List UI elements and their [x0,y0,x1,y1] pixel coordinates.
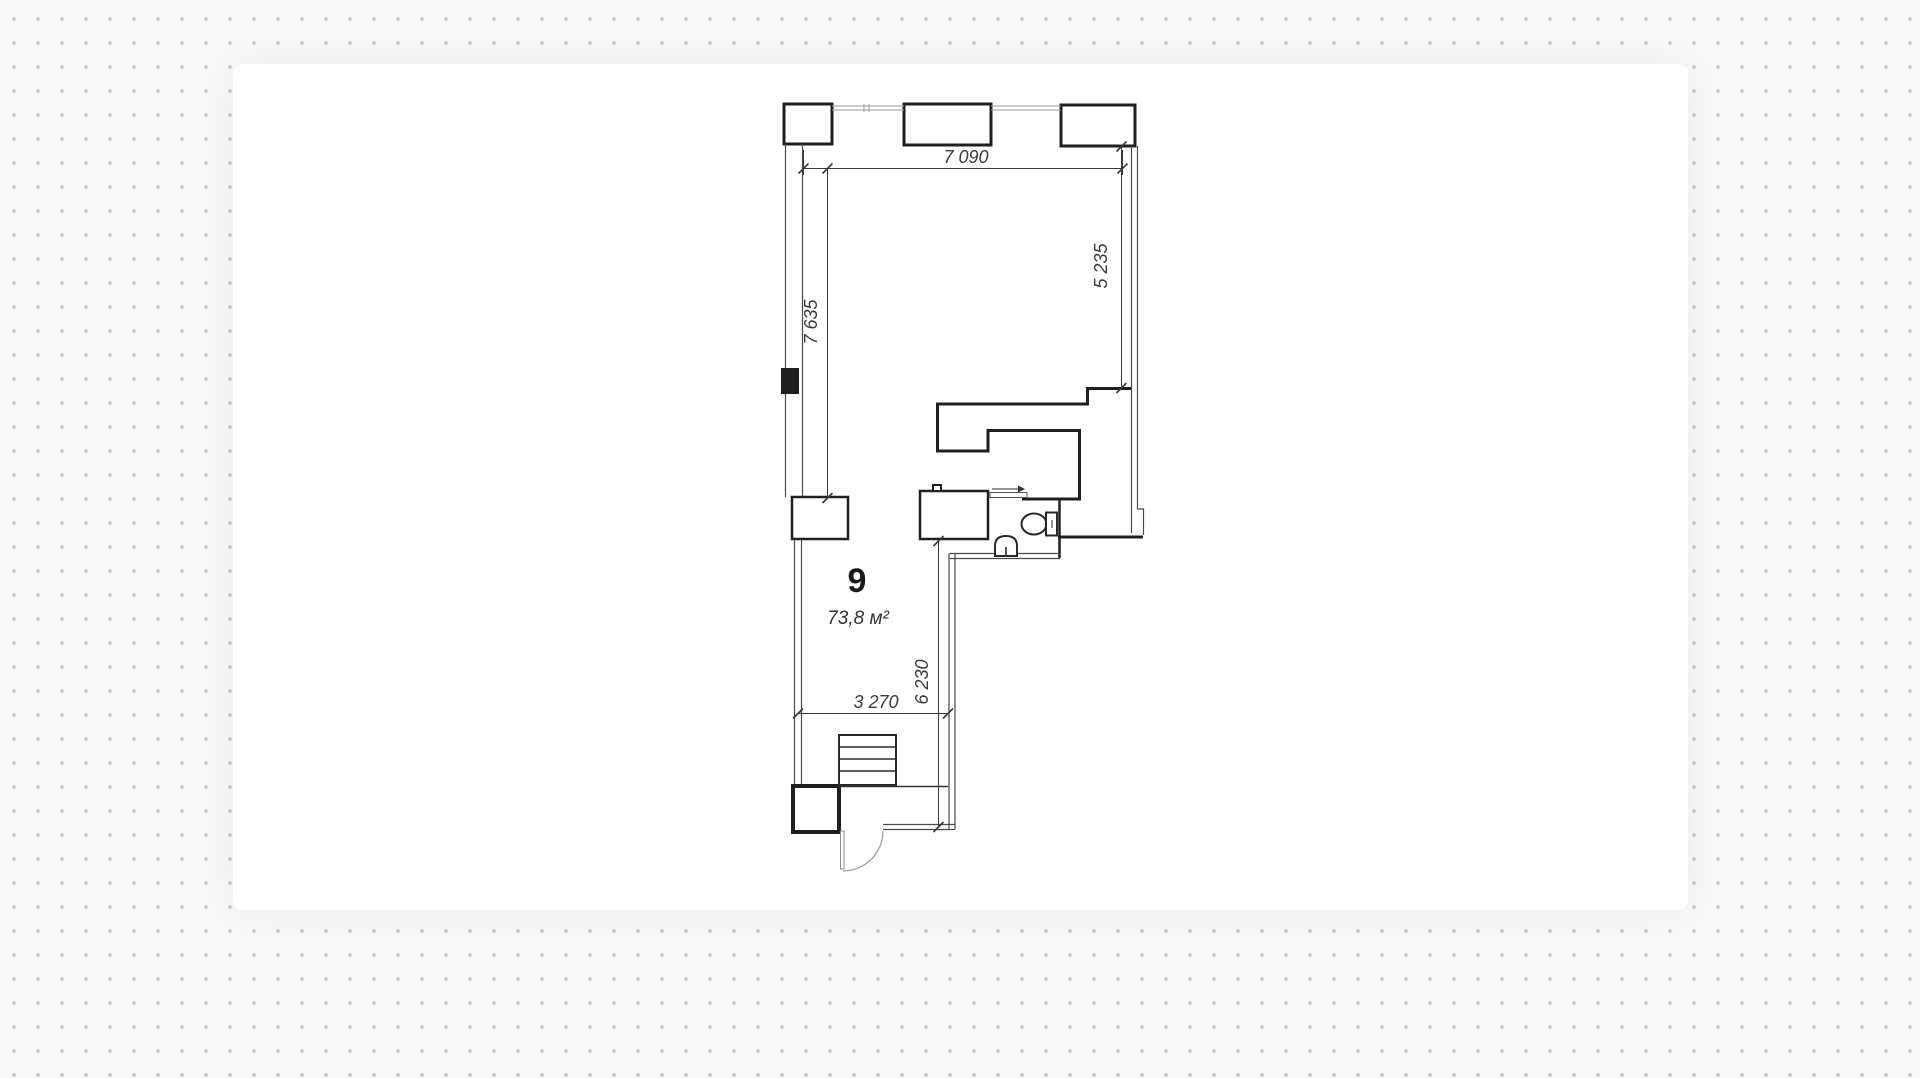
dimension-label-left: 7 635 [801,298,821,344]
window-icon [991,106,1061,110]
dimension-label-bottom: 3 270 [853,692,898,712]
dimension-inner: 6 230 [912,536,944,832]
dimension-label-right: 5 235 [1091,242,1111,288]
dimension-label-inner: 6 230 [912,659,932,704]
window-icon [832,104,904,112]
stairs-icon [839,735,948,787]
wall-pier-top-left [784,104,832,144]
sink-icon [995,536,1017,556]
unit-area-label: 73,8 м² [827,608,889,629]
dimension-left: 7 635 [801,164,833,504]
wall-block-nub [933,485,941,491]
unit-number-label: 9 [848,562,867,600]
wall-block-corridor [920,491,988,539]
wall-pier-top-right [1061,105,1135,146]
wall-pier-bottom-left [793,786,839,832]
entry-door-icon [841,831,884,871]
dimension-top: 7 090 [799,147,1128,175]
wall-pier-left-solid [781,368,799,394]
outer-walls [781,104,1144,832]
wall-pier-left-middle [792,497,848,539]
page-background: { "plan": { "unit_number": "9", "area_la… [0,0,1920,1078]
dimension-right: 5 235 [1091,142,1127,394]
floor-plan: 7 090 7 635 5 235 6 230 3 270 9 73,8 м² [0,0,1920,1078]
wall-pier-top-middle [904,104,991,145]
dimension-label-top: 7 090 [943,147,988,167]
sliding-door-icon [990,486,1027,498]
toilet-icon [1022,513,1058,536]
